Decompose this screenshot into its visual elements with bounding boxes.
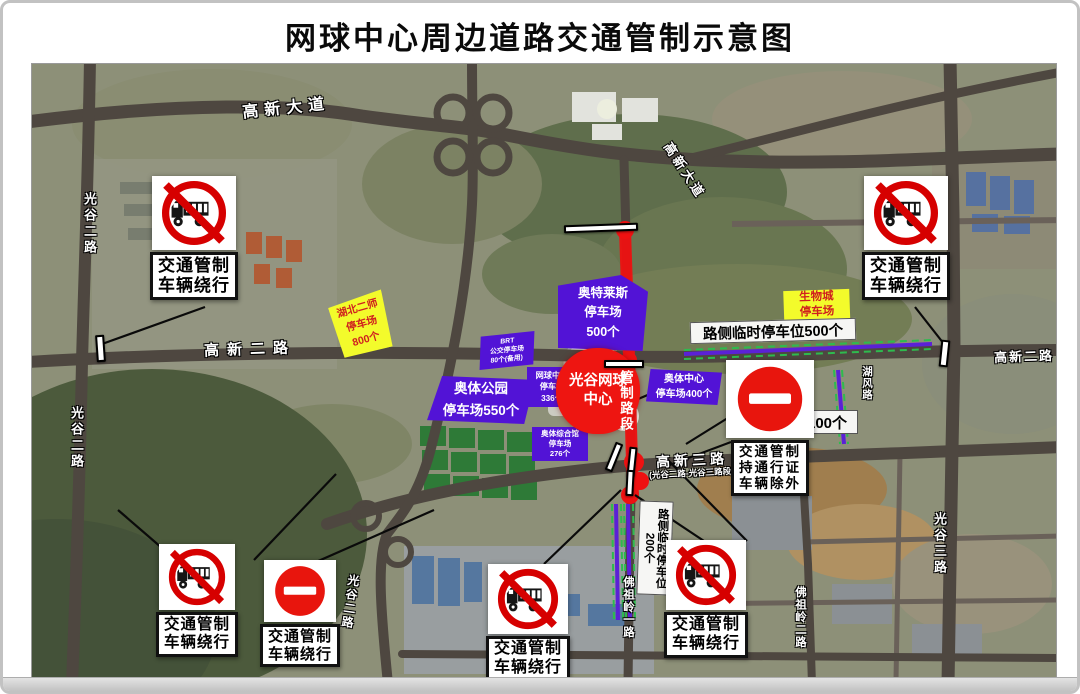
barrier-icon-west bbox=[95, 335, 106, 363]
no-truck-icon bbox=[152, 176, 236, 250]
traffic-sign-bottom-left-1: 交通管制 车辆绕行 bbox=[156, 544, 238, 657]
sign-caption: 交通管制 车辆绕行 bbox=[862, 252, 950, 300]
barrier-icon-mid bbox=[604, 360, 644, 368]
frame-bottom-edge bbox=[3, 677, 1077, 691]
road-label-fozuling-1: 佛祖岭一路 bbox=[620, 576, 636, 639]
barrier-icon-south-3 bbox=[625, 470, 634, 496]
label-roadside-500: 路侧临时停车位500个 bbox=[690, 318, 857, 344]
road-label-gaoxin-2-west: 高新二路 bbox=[204, 336, 297, 360]
page-title: 网球中心周边道路交通管制示意图 bbox=[3, 13, 1077, 58]
no-entry-icon bbox=[726, 360, 814, 438]
road-label-gaoxin-2-east: 高新二路 bbox=[994, 345, 1055, 366]
traffic-sign-bottom-right: 交通管制 车辆绕行 bbox=[664, 540, 748, 658]
sign-caption: 交通管制 车辆绕行 bbox=[486, 636, 570, 682]
parking-label-aoti-center: 奥体中心 停车场400个 bbox=[646, 369, 722, 405]
no-truck-icon bbox=[666, 540, 746, 610]
parking-label-brt: BRT 公交停车场 80个(备用) bbox=[480, 331, 535, 370]
no-truck-icon bbox=[488, 564, 568, 634]
parking-label-aoti-park: 奥体公园 停车场550个 bbox=[427, 376, 535, 424]
traffic-sign-bottom-center: 交通管制 车辆绕行 bbox=[486, 564, 570, 682]
road-label-guanggu-2-south: 光谷二路 bbox=[67, 406, 86, 470]
road-label-hufeng: 湖风路 bbox=[860, 366, 875, 401]
sign-caption: 交通管制 持通行证 车辆除外 bbox=[731, 440, 809, 496]
poster-frame: 网球中心周边道路交通管制示意图 bbox=[0, 0, 1080, 694]
road-label-guanggu-2-north: 光谷二路 bbox=[80, 192, 99, 256]
traffic-sign-top-right: 交通管制 车辆绕行 bbox=[862, 176, 950, 300]
parking-label-aoti-hall: 奥体综合馆 停车场 276个 bbox=[532, 427, 588, 461]
sign-caption: 交通管制 车辆绕行 bbox=[156, 612, 238, 657]
no-entry-icon bbox=[264, 560, 336, 622]
no-truck-icon bbox=[159, 544, 235, 610]
no-truck-icon bbox=[864, 176, 948, 250]
sign-caption: 交通管制 车辆绕行 bbox=[664, 612, 748, 658]
traffic-sign-mid-right: 交通管制 持通行证 车辆除外 bbox=[726, 360, 814, 496]
road-label-guanggu-3: 光谷三路 bbox=[930, 512, 949, 576]
road-label-fozuling-2: 佛祖岭二路 bbox=[792, 586, 808, 649]
traffic-sign-bottom-left-2: 交通管制 车辆绕行 bbox=[260, 560, 340, 667]
traffic-sign-top-left: 交通管制 车辆绕行 bbox=[150, 176, 238, 300]
sign-caption: 交通管制 车辆绕行 bbox=[150, 252, 238, 300]
parking-label-outlets: 奥特莱斯 停车场 500个 bbox=[558, 275, 648, 351]
satellite-map: 高新大道 高新大道 高新二路 高新二路 高新三路 (光谷二路-光谷三路段) 光谷… bbox=[31, 63, 1057, 681]
sign-caption: 交通管制 车辆绕行 bbox=[260, 624, 340, 667]
